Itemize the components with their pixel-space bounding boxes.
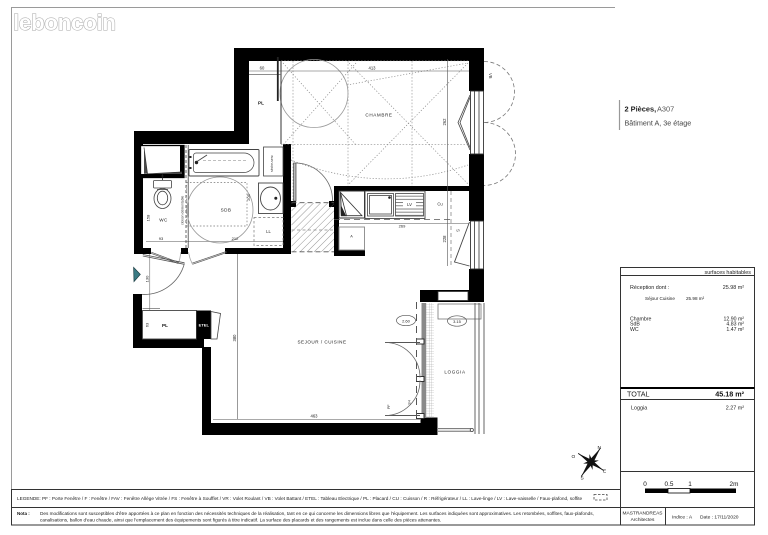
svg-text:canalisations, ballon d'eau ch: canalisations, ballon d'eau chaude, ains… [40, 517, 441, 522]
svg-text:Date : 17/11/2020: Date : 17/11/2020 [700, 514, 739, 520]
svg-text:LEGENDE: PF : Porte Fenêtre /: LEGENDE: PF : Porte Fenêtre / F : Fenêtr… [17, 496, 583, 501]
svg-text:262: 262 [442, 118, 447, 126]
svg-text:3.15: 3.15 [453, 319, 462, 324]
svg-text:ETEL: ETEL [199, 323, 210, 328]
svg-text:205: 205 [246, 193, 251, 200]
svg-text:0: 0 [643, 481, 647, 488]
svg-text:CHAMBRE: CHAMBRE [365, 113, 392, 118]
svg-text:380: 380 [232, 334, 237, 342]
svg-text:93: 93 [159, 236, 164, 241]
svg-text:228: 228 [442, 235, 447, 243]
svg-text:SDB: SDB [221, 208, 232, 213]
svg-text:WC: WC [630, 327, 639, 333]
svg-text:A307: A307 [657, 105, 674, 114]
svg-text:3/4: 3/4 [408, 400, 412, 405]
svg-text:63: 63 [145, 322, 150, 327]
svg-text:Des modifications sont suscept: Des modifications sont susceptibles d'êt… [40, 511, 594, 516]
svg-text:Réception dont :: Réception dont : [630, 285, 669, 291]
svg-text:Indice : A: Indice : A [672, 514, 693, 520]
svg-text:LOGGIA: LOGGIA [444, 370, 466, 375]
svg-text:Bâtiment A, 3e étage: Bâtiment A, 3e étage [625, 119, 692, 128]
svg-text:leboncoin: leboncoin [13, 10, 116, 35]
svg-text:25.98 m²: 25.98 m² [686, 296, 705, 301]
svg-text:2.27 m²: 2.27 m² [726, 406, 744, 412]
svg-text:Loggia: Loggia [631, 406, 647, 412]
svg-text:PL: PL [258, 101, 264, 106]
svg-text:PF: PF [387, 404, 391, 409]
svg-text:1.47 m²: 1.47 m² [726, 327, 744, 333]
svg-text:S: S [581, 476, 584, 482]
svg-text:S: S [456, 229, 461, 232]
svg-text:269: 269 [399, 224, 406, 229]
svg-text:212: 212 [232, 236, 239, 241]
svg-text:130: 130 [144, 275, 149, 282]
svg-text:Séjour Cuisine: Séjour Cuisine [645, 296, 675, 301]
svg-text:0.5: 0.5 [665, 481, 674, 488]
svg-text:463: 463 [311, 414, 319, 419]
svg-text:2 Pièces,: 2 Pièces, [625, 105, 657, 114]
svg-text:PL: PL [162, 323, 168, 328]
svg-text:LV: LV [407, 202, 412, 207]
svg-text:LL: LL [266, 229, 271, 234]
svg-text:E: E [603, 469, 606, 475]
svg-text:A: A [350, 235, 353, 239]
svg-text:N: N [598, 445, 602, 451]
svg-text:cloison démontable: cloison démontable [181, 196, 185, 225]
svg-text:413: 413 [369, 66, 377, 71]
svg-text:WC: WC [159, 218, 168, 223]
svg-text:Nota :: Nota : [17, 511, 30, 516]
svg-text:2m: 2m [730, 481, 739, 488]
svg-text:Architectes: Architectes [631, 517, 655, 523]
svg-text:1: 1 [688, 481, 692, 488]
svg-text:25.98 m²: 25.98 m² [723, 285, 744, 291]
svg-text:60: 60 [260, 66, 265, 71]
svg-text:surfaces habitables: surfaces habitables [705, 270, 752, 276]
svg-text:sèche-serv.: sèche-serv. [270, 155, 274, 172]
svg-text:MASTRANDREAS: MASTRANDREAS [623, 511, 663, 517]
svg-text:SEJOUR / CUISINE: SEJOUR / CUISINE [297, 340, 346, 345]
svg-text:VB: VB [488, 73, 493, 79]
svg-text:45.18 m²: 45.18 m² [715, 390, 744, 399]
svg-text:TOTAL: TOTAL [627, 390, 650, 399]
svg-text:Cu: Cu [437, 202, 443, 207]
svg-text:158: 158 [146, 214, 151, 221]
svg-text:2.60: 2.60 [402, 318, 411, 323]
svg-text:O: O [572, 454, 576, 460]
